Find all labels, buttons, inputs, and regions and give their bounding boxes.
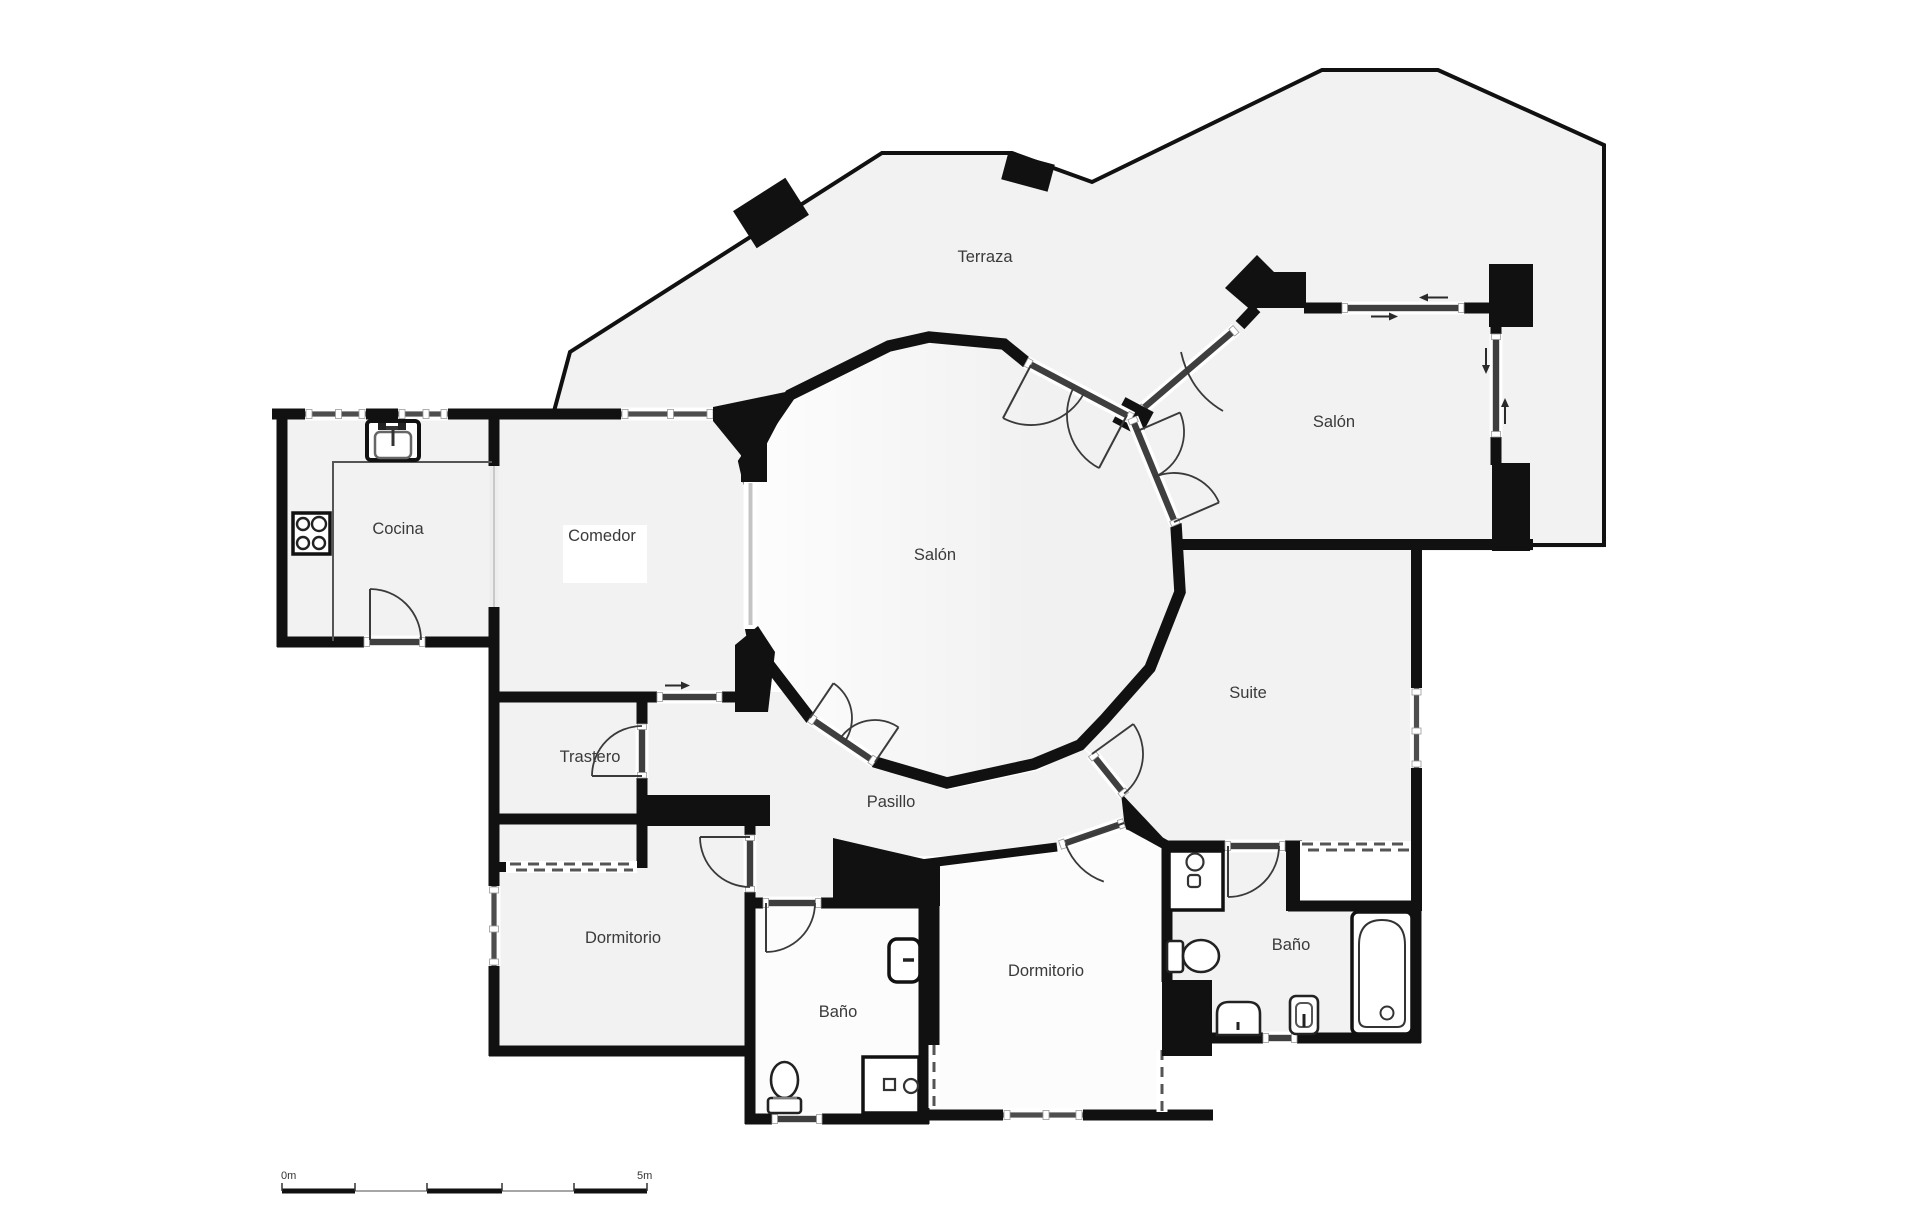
svg-text:Suite: Suite: [1229, 684, 1267, 702]
svg-text:Baño: Baño: [1272, 936, 1311, 954]
svg-text:Salón: Salón: [1313, 413, 1355, 431]
svg-text:Pasillo: Pasillo: [867, 793, 916, 811]
svg-text:Dormitorio: Dormitorio: [1008, 962, 1084, 980]
svg-text:Terraza: Terraza: [957, 248, 1013, 266]
svg-text:Trastero: Trastero: [560, 748, 621, 766]
svg-text:Salón: Salón: [914, 546, 956, 564]
svg-text:Cocina: Cocina: [372, 520, 424, 538]
svg-text:Dormitorio: Dormitorio: [585, 929, 661, 947]
svg-text:5m: 5m: [637, 1170, 652, 1182]
svg-text:Baño: Baño: [819, 1003, 858, 1021]
svg-text:0m: 0m: [281, 1170, 296, 1182]
svg-text:Comedor: Comedor: [568, 527, 636, 545]
